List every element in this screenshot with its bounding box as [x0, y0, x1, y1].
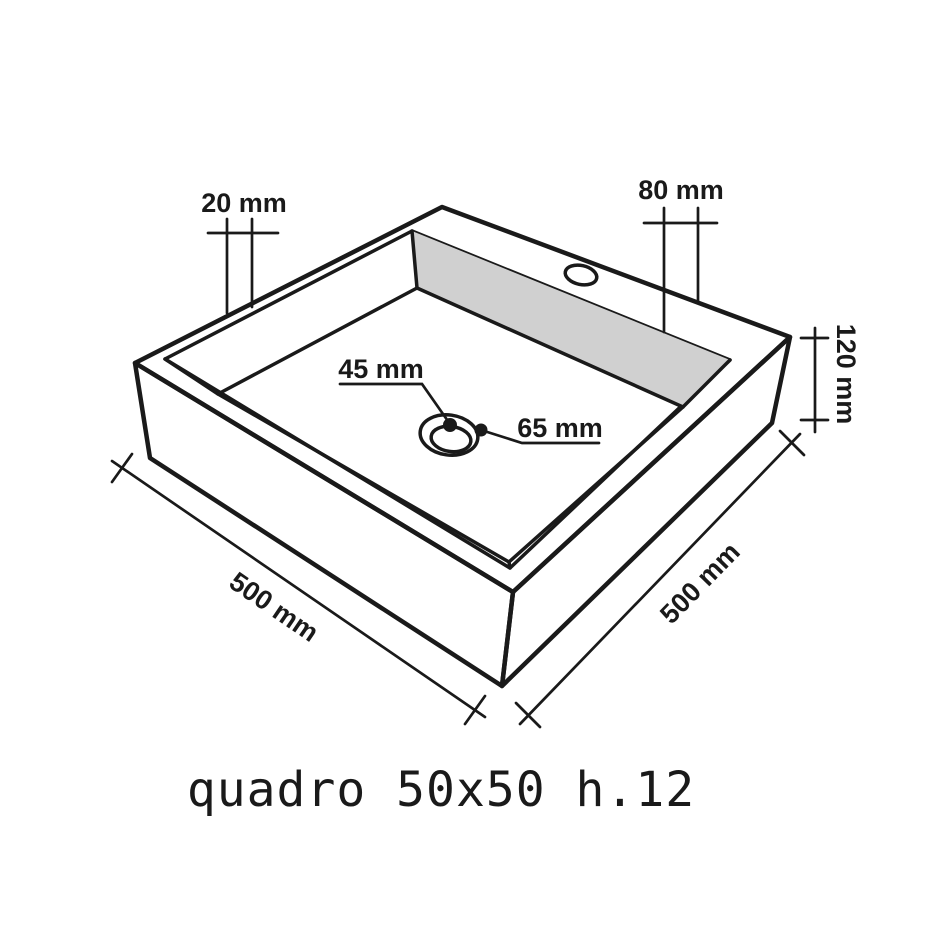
- dim-65-label: 65 mm: [517, 413, 603, 443]
- dim-500-right-label: 500 mm: [654, 536, 746, 629]
- dim-20-label: 20 mm: [201, 188, 287, 218]
- basin-diagram: 20 mm 80 mm 120 mm 45 mm 65 mm: [0, 0, 950, 950]
- dimension-45mm: 45 mm: [338, 354, 450, 424]
- dimension-500mm-left: 500 mm: [112, 454, 485, 724]
- drain: [417, 411, 487, 459]
- dim-80-label: 80 mm: [638, 175, 724, 205]
- dim-45-label: 45 mm: [338, 354, 424, 384]
- basin-body: [135, 207, 790, 686]
- product-caption: quadro 50x50 h.12: [187, 762, 695, 818]
- dimension-120mm: 120 mm: [801, 324, 861, 432]
- dimension-65mm: 65 mm: [481, 413, 603, 443]
- interior-corner-edge-front: [509, 562, 510, 568]
- dimension-500mm-right: 500 mm: [516, 431, 804, 727]
- dim-120-label: 120 mm: [831, 324, 861, 425]
- dim-500-left-line: [112, 461, 485, 717]
- basin-front-left-face: [135, 363, 513, 686]
- dim-500-left-label: 500 mm: [224, 566, 324, 648]
- faucet-hole: [563, 262, 598, 287]
- dim-500-right-line: [520, 434, 800, 724]
- dim-500-left-tick-end: [465, 696, 485, 724]
- dim-500-left-tick-start: [112, 454, 132, 482]
- interior-corner-edge-left: [165, 359, 218, 394]
- technical-drawing-page: 20 mm 80 mm 120 mm 45 mm 65 mm: [0, 0, 950, 950]
